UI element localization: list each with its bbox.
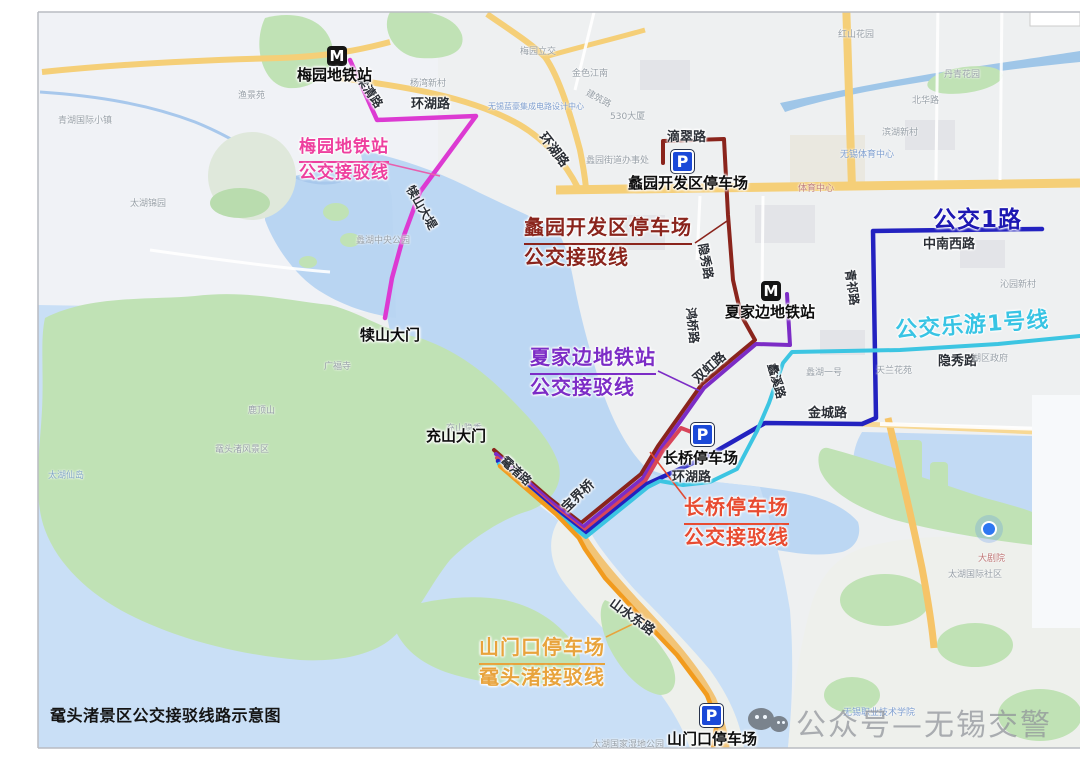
callout-line1: 夏家边地铁站 [530, 345, 656, 375]
route-callout-1: 蠡园开发区停车场公交接驳线 [524, 215, 692, 270]
road-label-滴翠路: 滴翠路 [667, 126, 706, 145]
parking-icon: P [671, 150, 694, 173]
poi-label: 太湖国家湿地公园 [592, 737, 664, 750]
poi-label: 体育中心 [798, 181, 834, 194]
poi-label: 鼋头渚风景区 [215, 442, 269, 455]
wechat-official-account-icon [748, 704, 790, 740]
poi-label: 530大厦 [610, 109, 645, 122]
callout-line2: 鼋头渚接驳线 [479, 665, 605, 691]
poi-label: 丹青花园 [944, 67, 980, 80]
map-title: 鼋头渚景区公交接驳线路示意图 [50, 702, 281, 726]
poi-label: 太湖仙岛 [48, 468, 84, 481]
route-callout-4: 山门口停车场鼋头渚接驳线 [479, 635, 605, 690]
poi-label: 天兰花苑 [876, 363, 912, 376]
metro-station-icon: M [761, 281, 781, 301]
poi-label: 杨湾新村 [410, 76, 446, 89]
callout-line2: 公交接驳线 [524, 245, 692, 271]
poi-label: 蠡湖一号 [806, 365, 842, 378]
callout-line1: 蠡园开发区停车场 [524, 215, 692, 245]
gate-label: 犊山大门 [360, 324, 420, 345]
poi-label: 无锡蓝豪集成电路设计中心 [488, 101, 584, 112]
poi-label: 蠡园街道办事处 [586, 153, 649, 166]
route-callout-3: 长桥停车场公交接驳线 [684, 495, 789, 550]
callout-line2: 公交接驳线 [684, 525, 789, 551]
poi-label: 渔景苑 [238, 88, 265, 101]
poi-label: 蠡湖中央公园 [356, 233, 410, 246]
metro-station-label: 梅园地铁站 [297, 64, 372, 85]
road-label-鸿桥路: 鸿桥路 [683, 307, 704, 345]
callout-line1: 梅园地铁站 [299, 137, 389, 163]
poi-label: 滨湖新村 [882, 125, 918, 138]
poi-label: 太湖国际社区 [948, 567, 1002, 580]
shuttle-route-map: 环湖路环湖路滴翠路隐秀路鸿桥路双虹路蠡溪路金城路青祁路中南西路隐秀路环湖路宝界桥… [0, 0, 1080, 764]
poi-label: 广福寺 [324, 359, 351, 372]
callout-line2: 公交接驳线 [530, 375, 656, 401]
poi-label: 梅园立交 [520, 44, 556, 57]
callout-line1: 山门口停车场 [479, 635, 605, 665]
route-banner-0: 公交1路 [933, 200, 1022, 234]
watermark: 公众号—无锡交警 [748, 700, 1052, 744]
poi-label: 无锡体育中心 [840, 147, 894, 160]
poi-label: 湖区政府 [972, 351, 1008, 364]
poi-label: 红山花园 [838, 27, 874, 40]
metro-station-icon: M [327, 46, 347, 66]
watermark-text: 公众号—无锡交警 [796, 700, 1052, 744]
parking-icon: P [700, 704, 723, 727]
gate-label: 充山大门 [426, 425, 486, 446]
poi-label: 太湖锦园 [130, 196, 166, 209]
poi-label: 大剧院 [978, 551, 1005, 564]
route-callout-0: 梅园地铁站公交接驳线 [299, 137, 389, 185]
poi-label: 北华路 [912, 93, 939, 106]
parking-label: 蠡园开发区停车场 [628, 172, 748, 193]
poi-label: 鹿顶山 [248, 403, 275, 416]
poi-label: 青湖国际小镇 [58, 113, 112, 126]
road-label-环湖路: 环湖路 [672, 466, 711, 485]
road-label-环湖路: 环湖路 [411, 93, 450, 112]
parking-label: 长桥停车场 [663, 447, 738, 468]
callout-line1: 长桥停车场 [684, 495, 789, 525]
map-location-dot [981, 521, 997, 537]
route-callout-2: 夏家边地铁站公交接驳线 [530, 345, 656, 400]
road-label-金城路: 金城路 [808, 402, 847, 421]
callout-line2: 公交接驳线 [299, 163, 389, 185]
parking-icon: P [691, 423, 714, 446]
poi-label: 沁园新村 [1000, 277, 1036, 290]
road-label-中南西路: 中南西路 [923, 233, 975, 252]
poi-label: 金色江南 [572, 66, 608, 79]
metro-station-label: 夏家边地铁站 [725, 301, 815, 322]
parking-label: 山门口停车场 [667, 728, 757, 749]
